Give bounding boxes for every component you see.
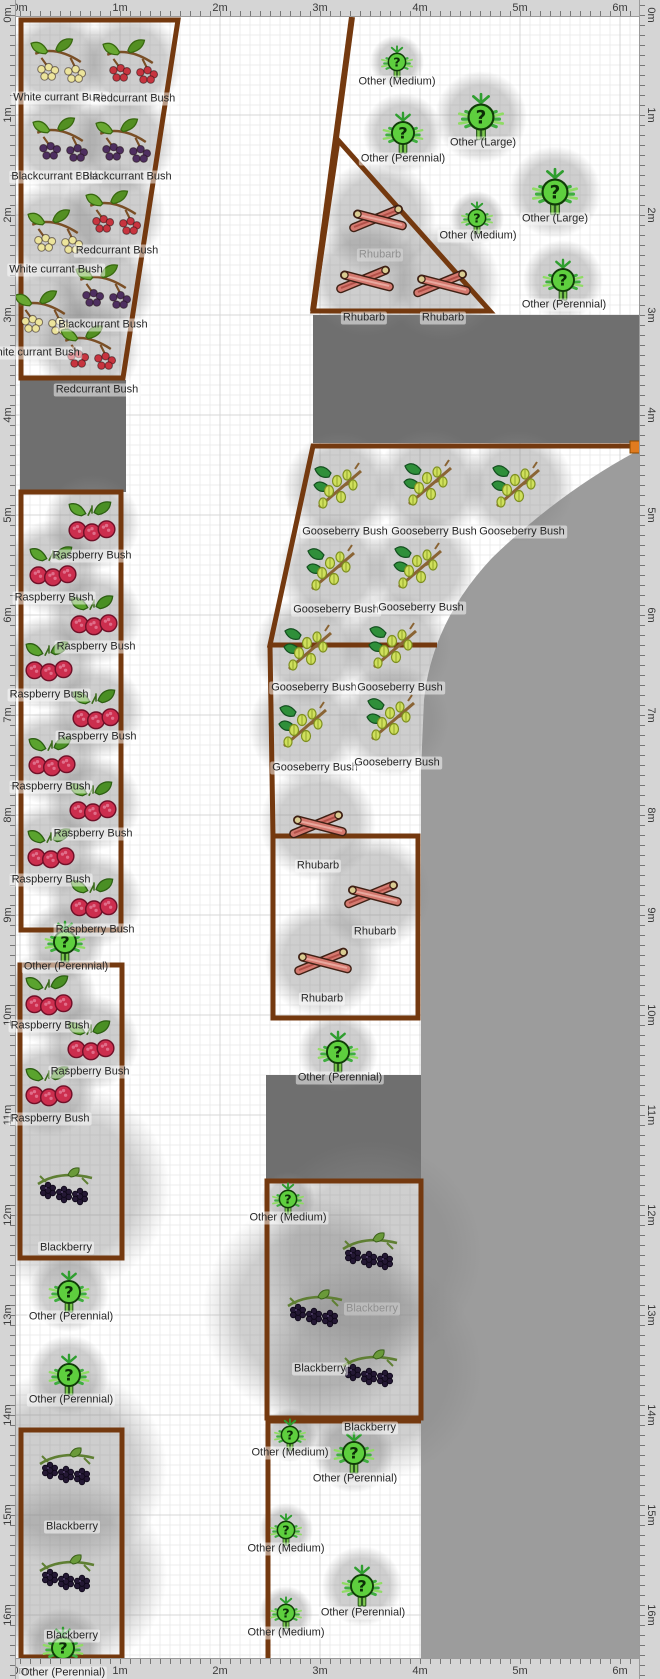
ruler-label: 6m [612, 1665, 627, 1677]
ruler-label: 8m [645, 807, 657, 822]
ruler-label: 4m [645, 407, 657, 422]
ruler-label: 12m [645, 1204, 657, 1225]
ruler-label: 2m [212, 1665, 227, 1677]
ruler-label: 2m [645, 207, 657, 222]
ruler-left: 0m1m2m3m4m5m6m7m8m9m10m11m12m13m14m15m16… [0, 0, 16, 1679]
ruler-label: 13m [2, 1304, 14, 1325]
ruler-top: 0m1m2m3m4m5m6m [0, 0, 660, 17]
ruler-label: 3m [312, 1665, 327, 1677]
ruler-label: 3m [645, 307, 657, 322]
ruler-label: 16m [645, 1604, 657, 1625]
ruler-label: 4m [412, 2, 427, 14]
bed-gooseberry-low[interactable] [270, 645, 273, 836]
ruler-label: 1m [112, 2, 127, 14]
ruler-label: 0m [2, 7, 14, 22]
ruler-label: 4m [412, 1665, 427, 1677]
ruler-label: 4m [2, 407, 14, 422]
plan-canvas: ? [0, 0, 660, 1679]
ruler-label: 11m [2, 1105, 14, 1126]
ruler-label: 2m [212, 2, 227, 14]
plant-spread-shade [36, 297, 140, 401]
ruler-label: 7m [2, 707, 14, 722]
ruler-label: 6m [2, 607, 14, 622]
garden-planner-canvas: ? [0, 0, 660, 1679]
ruler-label: 10m [645, 1004, 657, 1025]
ruler-label: 9m [645, 907, 657, 922]
ruler-label: 6m [612, 2, 627, 14]
ruler-label: 3m [2, 307, 14, 322]
ruler-label: 5m [512, 2, 527, 14]
ruler-label: 14m [2, 1404, 14, 1425]
ruler-label: 10m [2, 1004, 14, 1025]
ruler-label: 11m [645, 1105, 657, 1126]
ruler-label: 14m [645, 1404, 657, 1425]
ruler-label: 3m [312, 2, 327, 14]
ruler-label: 16m [2, 1604, 14, 1625]
ruler-label: 1m [112, 1665, 127, 1677]
ruler-label: 13m [645, 1304, 657, 1325]
ruler-bottom: 0m1m2m3m4m5m6m [0, 1658, 660, 1679]
ruler-label: 1m [2, 107, 14, 122]
ruler-label: 2m [2, 207, 14, 222]
ruler-label: 1m [645, 107, 657, 122]
ruler-label: 0m [645, 7, 657, 22]
ruler-label: 5m [512, 1665, 527, 1677]
ruler-label: 6m [645, 607, 657, 622]
ruler-label: 5m [645, 507, 657, 522]
ruler-label: 8m [2, 807, 14, 822]
zone-light-right[interactable] [421, 450, 639, 1658]
ruler-right: 0m1m2m3m4m5m6m7m8m9m10m11m12m13m14m15m16… [639, 0, 660, 1679]
ruler-label: 15m [645, 1504, 657, 1525]
ruler-label: 12m [2, 1204, 14, 1225]
ruler-label: 15m [2, 1504, 14, 1525]
ruler-label: 7m [645, 707, 657, 722]
ruler-label: 9m [2, 907, 14, 922]
ruler-label: 5m [2, 507, 14, 522]
